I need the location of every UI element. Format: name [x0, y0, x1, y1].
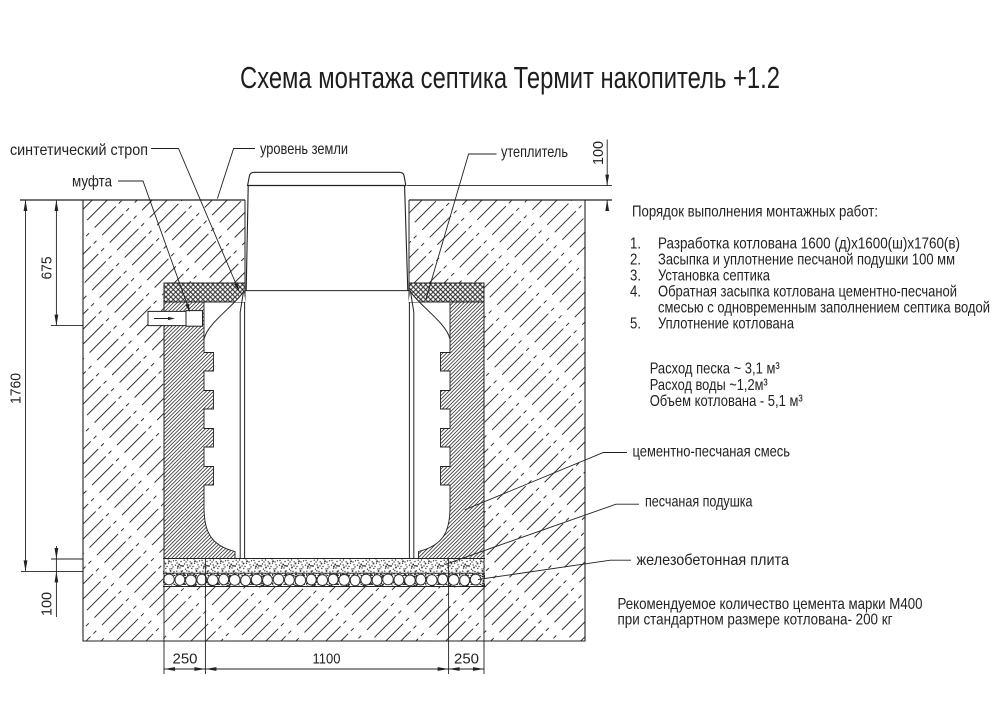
svg-text:5.: 5. [630, 316, 641, 333]
svg-text:уровень земли: уровень земли [260, 141, 348, 158]
svg-text:Засыпка и уплотнение песчаной: Засыпка и уплотнение песчаной подушки 10… [658, 252, 955, 269]
svg-text:при стандартном размере котлов: при стандартном размере котлована- 200 к… [618, 611, 893, 628]
svg-text:2.: 2. [630, 252, 641, 269]
svg-text:250: 250 [173, 652, 198, 668]
svg-text:250: 250 [454, 652, 479, 668]
svg-text:4.: 4. [630, 284, 641, 301]
svg-text:Расход воды ~1,2м³: Расход воды ~1,2м³ [650, 377, 769, 394]
svg-text:железобетонная плита: железобетонная плита [637, 552, 790, 569]
svg-text:100: 100 [40, 592, 56, 616]
svg-text:Объем котлована - 5,1 м³: Объем котлована - 5,1 м³ [650, 393, 804, 410]
svg-text:675: 675 [40, 257, 56, 280]
svg-text:синтетический строп: синтетический строп [10, 142, 148, 159]
svg-text:Установка септика: Установка септика [658, 268, 770, 285]
svg-text:Обратная засыпка котлована цем: Обратная засыпка котлована цементно-песч… [658, 284, 957, 301]
svg-text:смесью с одновременным заполне: смесью с одновременным заполнением септи… [658, 300, 990, 317]
svg-text:Разработка котлована 1600 (д)х: Разработка котлована 1600 (д)х1600(ш)х17… [658, 236, 960, 253]
svg-text:1.: 1. [630, 236, 641, 253]
svg-text:Порядок выполнения монтажных р: Порядок выполнения монтажных работ: [632, 204, 878, 221]
svg-text:цементно-песчаная смесь: цементно-песчаная смесь [633, 443, 791, 460]
svg-text:Схема монтажа септика Термит н: Схема монтажа септика Термит накопитель … [240, 60, 780, 95]
svg-text:1760: 1760 [9, 373, 25, 404]
svg-text:Уплотнение котлована: Уплотнение котлована [658, 316, 794, 333]
svg-text:100: 100 [591, 141, 607, 165]
svg-text:муфта: муфта [72, 174, 112, 191]
svg-text:3.: 3. [630, 268, 641, 285]
svg-text:Рекомендуемое количество цемен: Рекомендуемое количество цемента марки М… [618, 596, 923, 613]
svg-text:утеплитель: утеплитель [501, 144, 568, 161]
svg-text:песчаная подушка: песчаная подушка [645, 493, 753, 510]
svg-text:1100: 1100 [313, 652, 341, 668]
svg-text:Расход песка ~ 3,1 м³: Расход песка ~ 3,1 м³ [650, 361, 781, 378]
